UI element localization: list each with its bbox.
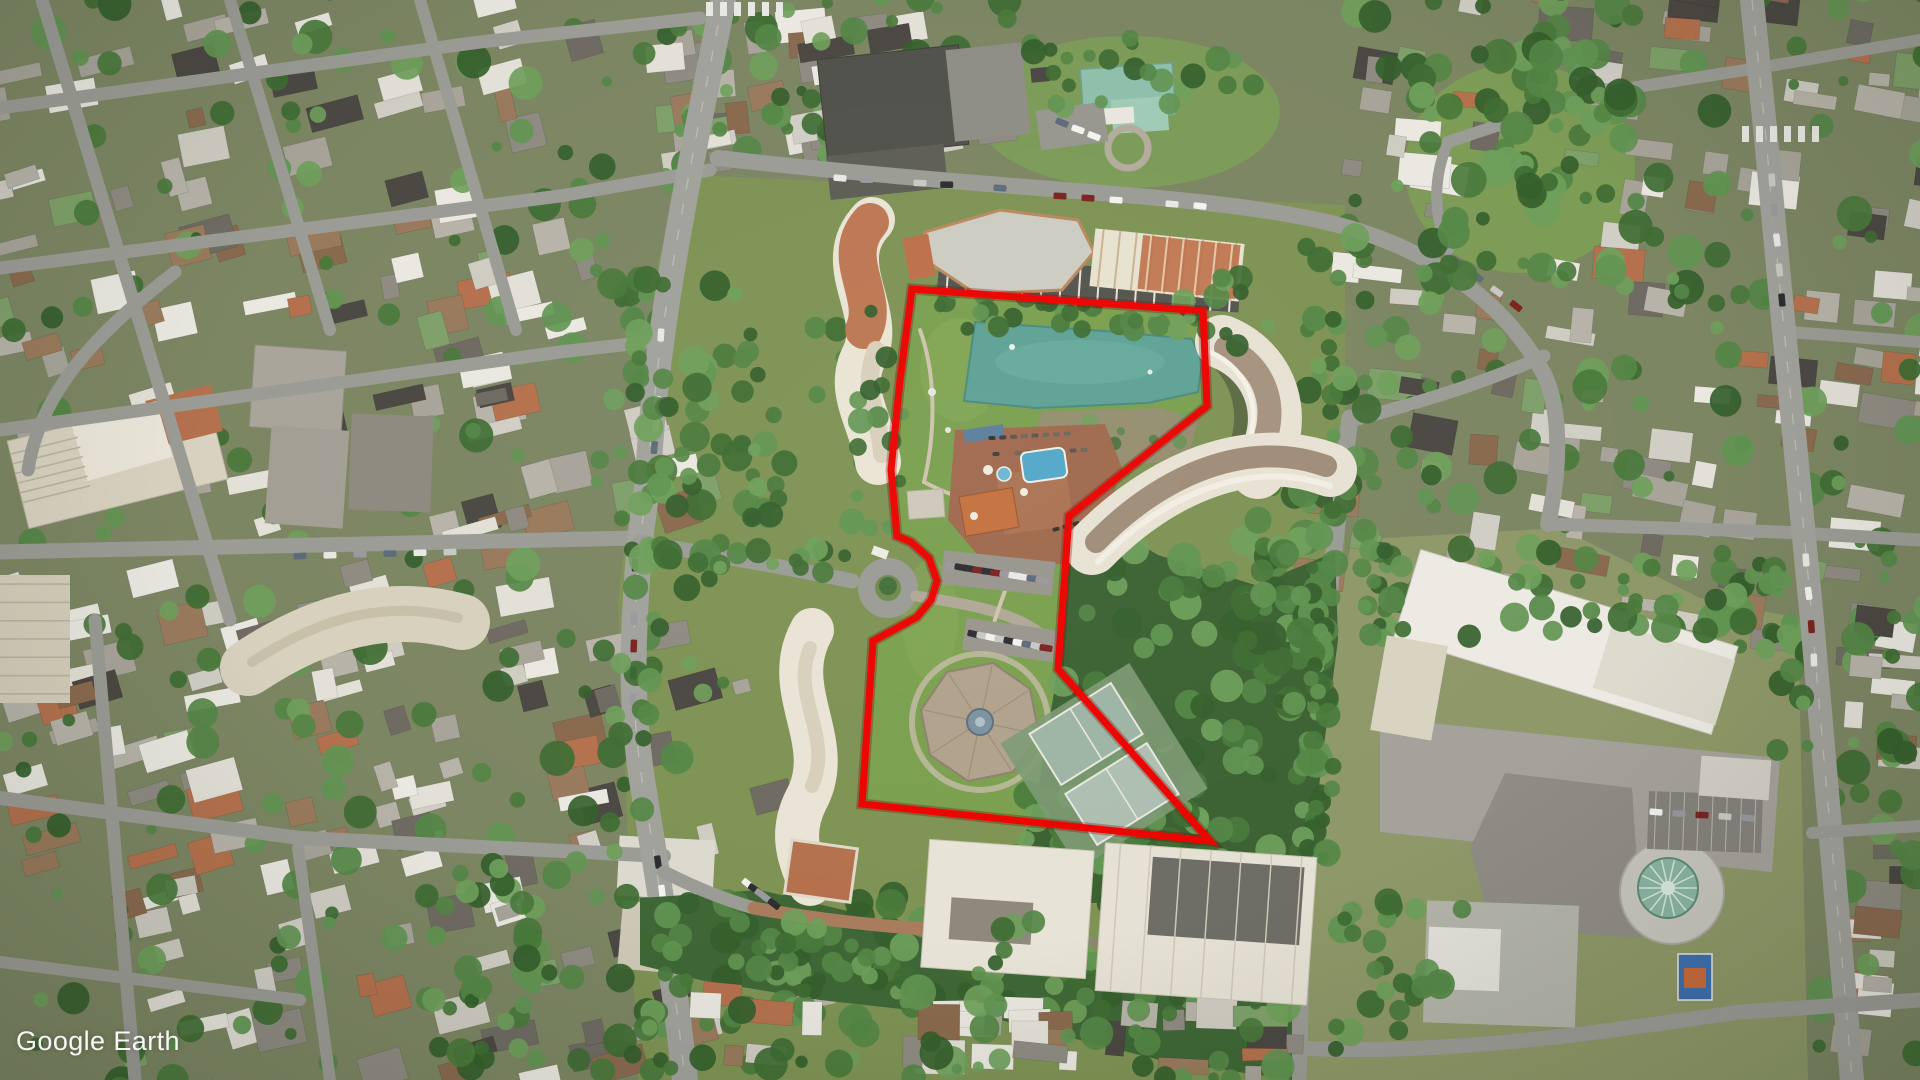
tree	[489, 859, 508, 878]
tree	[651, 618, 670, 637]
tree	[1774, 571, 1792, 589]
tree	[839, 509, 865, 535]
house-roof	[532, 217, 571, 255]
vehicle	[1021, 434, 1028, 438]
tree	[1022, 910, 1045, 933]
tree	[447, 1038, 476, 1067]
house-roof	[1469, 434, 1499, 466]
tree	[1190, 694, 1215, 719]
tree	[1560, 606, 1582, 628]
tree	[1243, 74, 1264, 95]
vehicle	[1042, 433, 1049, 437]
vehicle	[1064, 431, 1071, 436]
tree	[876, 346, 898, 368]
tree	[1322, 403, 1339, 420]
house-roof	[1359, 87, 1392, 114]
tree	[831, 960, 853, 982]
school-annex	[1699, 756, 1772, 801]
tree	[748, 477, 767, 496]
tree	[1570, 574, 1585, 589]
tree	[1359, 623, 1381, 645]
tree	[655, 277, 671, 293]
tree	[1128, 313, 1144, 329]
tree	[1476, 251, 1496, 271]
house-roof	[802, 1001, 822, 1035]
house-roof	[356, 973, 377, 997]
tree	[1305, 522, 1333, 550]
vehicle	[988, 436, 995, 440]
tree	[600, 812, 620, 832]
house-roof	[1648, 428, 1693, 463]
tree	[1319, 631, 1333, 645]
house-roof	[186, 108, 206, 129]
house-roof	[1692, 461, 1717, 489]
condo-south-darkroof	[1147, 857, 1304, 945]
pond-float	[1148, 370, 1153, 375]
tree	[614, 510, 630, 526]
tree	[1415, 265, 1433, 283]
vehicle	[1810, 653, 1817, 666]
tree	[429, 1037, 450, 1058]
tree	[427, 926, 447, 946]
school-parking	[1647, 791, 1763, 853]
tree	[1192, 621, 1218, 647]
street	[1812, 826, 1920, 833]
vehicle	[631, 612, 638, 625]
vehicle	[860, 176, 873, 183]
vehicle	[992, 452, 999, 456]
tree	[1500, 111, 1533, 144]
vehicle	[1010, 435, 1017, 439]
tree	[1587, 618, 1602, 633]
tree	[1122, 30, 1139, 47]
vehicle	[1109, 196, 1122, 203]
tree	[1626, 599, 1642, 615]
stripe	[1742, 126, 1749, 142]
tree	[1596, 184, 1615, 203]
tree	[603, 389, 625, 411]
vehicle	[657, 328, 664, 341]
tree	[1525, 65, 1558, 98]
tree	[1390, 425, 1413, 448]
tree	[757, 502, 783, 528]
stripe	[776, 2, 783, 16]
tree	[1395, 335, 1421, 361]
clubhouse-skylight-center	[975, 717, 985, 727]
google-earth-watermark: Google Earth	[16, 1026, 180, 1057]
tree	[733, 349, 752, 368]
tree	[1448, 535, 1475, 562]
tree	[973, 304, 990, 321]
tree	[1251, 559, 1274, 582]
vehicle	[1014, 451, 1021, 455]
tree	[625, 319, 653, 347]
tree	[697, 453, 721, 477]
house-roof	[1442, 313, 1477, 335]
tree	[628, 491, 653, 516]
tree	[638, 668, 662, 692]
tree	[1324, 781, 1340, 797]
vehicle	[1649, 808, 1662, 815]
vehicle	[833, 174, 846, 182]
tree	[849, 438, 867, 456]
umbrella	[1020, 488, 1028, 496]
tree	[858, 948, 876, 966]
tree	[678, 346, 709, 377]
tree	[1417, 488, 1434, 505]
tree	[1376, 372, 1400, 396]
tree	[680, 468, 697, 485]
tree	[688, 552, 709, 573]
vehicle	[650, 441, 658, 455]
vehicle	[1165, 200, 1178, 207]
tree	[1099, 49, 1120, 70]
tree	[682, 373, 711, 402]
umbrella	[970, 512, 978, 520]
tree	[1245, 507, 1272, 534]
tree	[1440, 255, 1459, 274]
stripe	[706, 2, 713, 16]
tree	[1471, 46, 1489, 64]
house-roof	[1342, 159, 1363, 177]
tree	[727, 542, 749, 564]
tree	[1453, 900, 1472, 919]
tree	[988, 955, 1003, 970]
tree	[514, 918, 542, 946]
tree	[1159, 93, 1180, 114]
tree	[1409, 82, 1435, 108]
house-roof	[287, 295, 312, 317]
vehicle	[383, 550, 396, 557]
pavilion-roof	[959, 488, 1019, 537]
tree	[748, 443, 761, 456]
tree	[731, 380, 753, 402]
tree	[730, 912, 750, 932]
tree	[1561, 156, 1579, 174]
house-roof	[725, 101, 750, 135]
tree	[1275, 585, 1291, 601]
tree	[1609, 124, 1638, 153]
vehicle	[413, 549, 426, 556]
tree	[728, 954, 744, 970]
swimming-pool	[1020, 447, 1068, 483]
tree	[589, 889, 605, 905]
tree	[1353, 519, 1377, 543]
stripe	[720, 2, 727, 16]
tree	[1322, 550, 1349, 577]
tree	[633, 266, 660, 293]
tree	[653, 369, 673, 389]
tree	[674, 574, 701, 601]
umbrella	[983, 465, 993, 475]
house-roof	[724, 1045, 745, 1066]
tree	[988, 316, 1009, 337]
tree	[1353, 558, 1372, 577]
tree	[590, 451, 609, 470]
tree	[1302, 306, 1328, 332]
house-roof	[1844, 701, 1864, 729]
tree	[1151, 624, 1173, 646]
tree	[422, 988, 446, 1012]
tree	[1226, 334, 1249, 357]
tree	[674, 447, 690, 463]
tree	[1061, 304, 1078, 321]
tree	[515, 996, 532, 1013]
tree	[1365, 325, 1388, 348]
tree	[750, 367, 766, 383]
tree	[647, 473, 671, 497]
tree	[1258, 622, 1287, 651]
tree	[662, 941, 682, 961]
tree	[1291, 586, 1311, 606]
stripe	[1756, 126, 1763, 142]
tree	[642, 1020, 658, 1036]
tree	[1569, 67, 1598, 96]
tree	[1755, 639, 1775, 659]
tree	[1310, 357, 1327, 374]
house-roof	[1570, 307, 1595, 343]
tree	[1061, 52, 1074, 65]
vehicle	[1768, 173, 1775, 186]
tree	[1477, 550, 1495, 568]
tree	[876, 889, 907, 920]
tree	[452, 865, 468, 881]
outbuilding	[907, 489, 945, 519]
tree	[1693, 618, 1719, 644]
tree	[608, 722, 632, 746]
tree	[523, 976, 541, 994]
vehicle	[1771, 203, 1779, 217]
vehicle	[443, 548, 456, 555]
tree	[1405, 898, 1426, 919]
tree	[1111, 607, 1142, 638]
house-roof	[1664, 17, 1701, 40]
tree	[1516, 173, 1543, 200]
tree	[1714, 545, 1732, 563]
tree	[593, 640, 615, 662]
tree	[751, 940, 767, 956]
tree	[1604, 79, 1636, 111]
tree	[1796, 696, 1811, 711]
tree	[851, 490, 863, 502]
tree	[1218, 76, 1236, 94]
tree	[1045, 65, 1061, 81]
vehicle	[630, 639, 637, 652]
vehicle	[1741, 814, 1755, 822]
tree	[1356, 291, 1375, 310]
tree	[746, 955, 773, 982]
tree	[1303, 731, 1323, 751]
house-roof	[690, 992, 722, 1019]
paved-yard	[945, 42, 1030, 141]
vehicle	[993, 184, 1006, 191]
tree	[1021, 39, 1046, 64]
house-roof	[1873, 270, 1912, 300]
house-roof	[903, 1036, 922, 1068]
tree	[1205, 46, 1230, 71]
vehicle	[1053, 432, 1060, 436]
tree	[1366, 961, 1384, 979]
tree	[1777, 624, 1797, 644]
house-roof	[1849, 655, 1883, 679]
tree	[1262, 319, 1276, 333]
tree	[1167, 543, 1201, 577]
tree	[1357, 375, 1373, 391]
vehicle	[1053, 192, 1066, 199]
basketball-court-key	[1684, 968, 1706, 988]
tree	[1276, 543, 1299, 566]
tree	[1705, 589, 1727, 611]
tree	[436, 896, 455, 915]
tree	[1323, 588, 1341, 606]
tree	[700, 270, 731, 301]
pond-highlight	[995, 340, 1165, 384]
tree	[542, 861, 571, 890]
tree	[415, 884, 439, 908]
tree	[1201, 719, 1223, 741]
tree	[635, 730, 651, 746]
tree	[1395, 621, 1411, 637]
tree	[606, 844, 622, 860]
tree	[1083, 50, 1096, 63]
stripe	[1784, 126, 1791, 142]
tree	[1073, 320, 1091, 338]
tree	[1307, 657, 1323, 673]
stripe	[762, 2, 769, 16]
vehicle	[353, 551, 366, 558]
tree	[1337, 911, 1352, 926]
tree	[509, 1038, 529, 1058]
tree	[513, 945, 541, 973]
stripe	[748, 2, 755, 16]
tree	[746, 538, 771, 563]
tree	[1801, 740, 1813, 752]
house-roof	[1853, 906, 1902, 938]
tree	[1062, 78, 1076, 92]
stripe	[734, 2, 741, 16]
tree	[860, 380, 880, 400]
tree	[775, 933, 797, 955]
tree	[1341, 223, 1370, 252]
aerial-imagery	[0, 0, 1920, 1080]
house-roof	[1196, 998, 1237, 1030]
tree	[1390, 555, 1412, 577]
tree	[1282, 692, 1305, 715]
google-earth-viewport[interactable]: Google Earth	[0, 0, 1920, 1080]
tree	[611, 653, 632, 674]
vehicle	[1031, 433, 1038, 437]
tree	[1366, 475, 1381, 490]
tree	[1304, 671, 1319, 686]
tree	[1043, 43, 1057, 57]
tree	[1313, 839, 1340, 866]
tree	[678, 892, 700, 914]
culdesac-tree	[879, 577, 897, 595]
tree	[1418, 291, 1442, 315]
tree	[1222, 719, 1245, 742]
house-roof	[1245, 1066, 1261, 1080]
tree	[1297, 748, 1323, 774]
tree	[812, 562, 834, 584]
tree	[1307, 701, 1320, 714]
tree	[1344, 925, 1361, 942]
vehicle	[1778, 293, 1786, 307]
tree	[1250, 582, 1276, 608]
tree	[765, 407, 781, 423]
tree	[1308, 800, 1324, 816]
stripe	[1770, 126, 1777, 142]
tree	[653, 540, 682, 569]
vehicle	[1808, 620, 1815, 633]
tree	[1419, 131, 1441, 153]
tree	[792, 560, 808, 576]
tree	[606, 964, 635, 993]
tree	[613, 446, 627, 460]
tree	[1730, 608, 1757, 635]
tree	[1425, 969, 1455, 999]
tree	[1331, 365, 1357, 391]
tree	[658, 966, 673, 981]
tree	[474, 1041, 489, 1056]
tree	[1140, 64, 1157, 81]
tree	[861, 968, 878, 985]
tree	[1326, 429, 1340, 443]
tree	[862, 520, 879, 537]
vehicle	[1695, 812, 1708, 819]
tree	[1310, 608, 1324, 622]
tree	[1543, 621, 1563, 641]
vehicle	[913, 180, 926, 187]
dark-roof-building	[817, 45, 969, 159]
tree	[971, 966, 985, 980]
tree	[1202, 564, 1225, 587]
tree	[1045, 977, 1064, 996]
apartment-slab	[348, 414, 433, 513]
terracotta-roof-section	[785, 840, 858, 903]
house-roof	[1868, 72, 1890, 87]
tree	[1451, 162, 1487, 198]
tree	[713, 561, 727, 575]
tree	[1565, 96, 1585, 116]
tree	[1438, 217, 1470, 249]
tree	[1421, 465, 1442, 486]
tree	[1529, 595, 1555, 621]
tree	[1330, 270, 1346, 286]
tree	[1378, 586, 1405, 613]
kiddie-pool	[997, 467, 1011, 481]
tree	[1160, 576, 1185, 601]
tree	[632, 350, 647, 365]
tree	[1508, 573, 1526, 591]
house-roof	[1863, 976, 1893, 993]
tree	[848, 408, 873, 433]
tree	[807, 918, 827, 938]
tree	[1211, 670, 1244, 703]
tree	[1458, 625, 1481, 648]
tree	[744, 328, 758, 342]
tree	[624, 1045, 642, 1063]
vehicle	[323, 552, 336, 559]
tree	[637, 704, 659, 726]
tree	[865, 305, 878, 318]
tree	[1780, 658, 1804, 682]
tree	[1436, 93, 1463, 120]
tree	[1297, 238, 1315, 256]
tree	[1244, 756, 1263, 775]
tree	[510, 891, 534, 915]
stripe	[1798, 126, 1805, 142]
tree	[1237, 631, 1257, 651]
